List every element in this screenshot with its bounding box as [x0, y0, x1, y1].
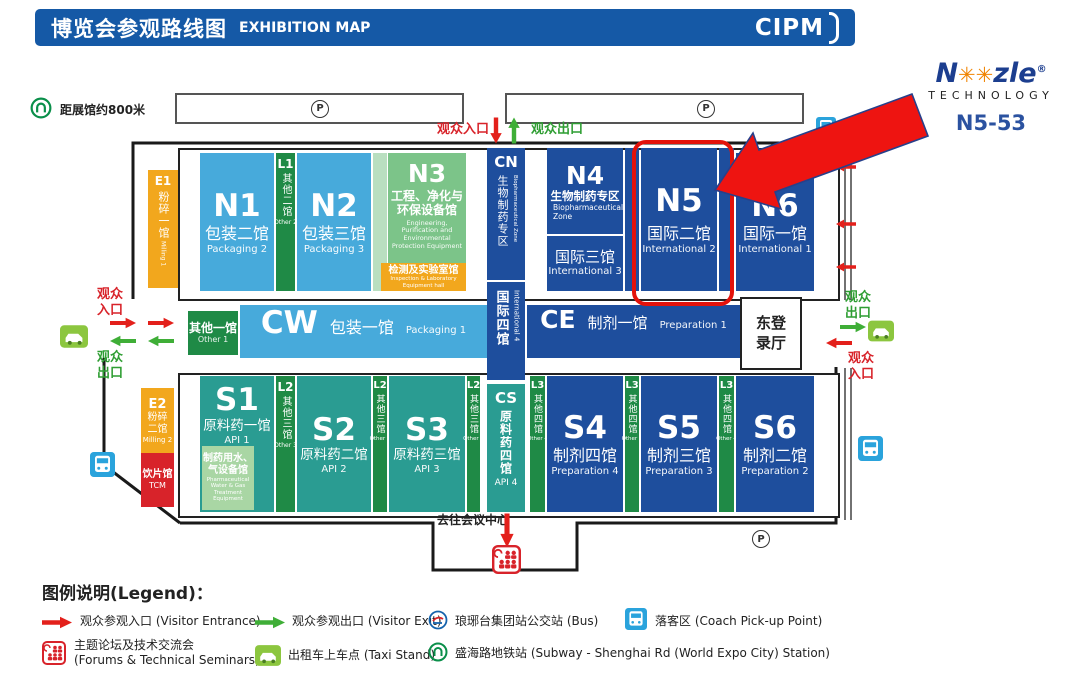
hall-code: N3: [408, 159, 446, 189]
hall-s2: S2 原料药二馆 API 2: [297, 376, 371, 512]
hall-name-en: TCM: [149, 481, 166, 490]
top-visitor-entrance-label: 观众入口: [437, 122, 489, 138]
coach-icon: [90, 452, 115, 477]
hall-n4: N4 生物制药专区 Biopharmaceutical Zone: [547, 148, 623, 234]
hall-l3: L3 其他四馆 Other 4: [719, 376, 734, 512]
hall-name-en: Pharmaceutical Water & Gas Treatment Equ…: [202, 477, 254, 503]
hall-name-en: Preparation 4: [551, 466, 618, 478]
hall-code: L1: [278, 158, 294, 170]
hall-n2: N2 包装三馆 Packaging 3: [297, 153, 371, 291]
taxi-icon: [60, 325, 88, 348]
hall-s6: S6 制剂二馆 Preparation 2: [736, 376, 814, 512]
hall-name-en: Inspection & Laboratory Equipment hall: [381, 276, 466, 289]
hall-name-cn: 其他四馆: [720, 394, 733, 434]
hall-name-en: Other 2: [274, 219, 297, 226]
hall-name-en: API 1: [224, 435, 249, 447]
legend-forums: 主题论坛及技术交流会 (Forums & Technical Seminars): [74, 638, 260, 668]
hall-name-cn: 其他四馆: [531, 394, 544, 434]
hall-name-cn: 工程、净化与环保设备馆: [388, 189, 466, 217]
hall-code: N1: [213, 188, 261, 225]
hall-code: N6: [751, 188, 799, 225]
hall-l1: L1 其他二馆 Other 2: [276, 153, 295, 291]
hall-name-cn: 生物制药专区: [551, 190, 620, 204]
hall-name-en: API 4: [495, 478, 518, 488]
parking-icon: P: [752, 530, 770, 548]
hall-code: S1: [215, 382, 259, 419]
east-hall-line2: 录厅: [756, 334, 786, 354]
parking-icon: P: [697, 100, 715, 118]
right-exit-label: 观众出口: [843, 290, 873, 321]
hall-name-en: Packaging 2: [207, 244, 267, 256]
hall-name-en: Packaging 1: [406, 325, 466, 337]
hall-name-cn: 国际四馆: [492, 290, 511, 346]
hall-code: E2: [149, 397, 167, 412]
hall-code: CS: [495, 389, 517, 407]
hall-name-en: Engineering, Purification and Environmen…: [388, 220, 466, 251]
forums-icon: [42, 641, 66, 665]
hall-name-en: Other 3: [370, 436, 391, 442]
hall-corridor-strip: [625, 148, 639, 291]
hall-name-cn: 其他三馆: [467, 394, 480, 434]
hall-code: S5: [657, 410, 701, 447]
hall-cn: CN 生物制药专区 Biopharmaceutical Zone: [487, 148, 525, 280]
hall-name-en: International 1: [738, 244, 811, 256]
hall-name-cn: 粉碎二馆: [146, 412, 170, 436]
hall-l3: L3 其他四馆 Other 4: [530, 376, 545, 512]
hall-name-cn: 原料药四馆: [498, 410, 515, 475]
hall-name-cn: 包装二馆: [205, 225, 269, 244]
hall-name-cn: 原料药一馆: [203, 419, 271, 435]
hall-name-en: Milling 2: [143, 436, 172, 444]
hall-name-cn: 制剂三馆: [647, 447, 711, 466]
hall-l3: L3 其他四馆 Other 4: [625, 376, 639, 512]
hall-name-en: Other 3: [463, 436, 484, 442]
hall-name-cn: 其他二馆: [278, 173, 293, 217]
parking-icon: P: [311, 100, 329, 118]
legend-coach: 落客区 (Coach Pick-up Point): [655, 614, 822, 629]
legend-visitor-entrance: 观众参观入口 (Visitor Entrance): [80, 614, 261, 629]
hall-name-cn: 检测及实验室馆: [389, 265, 459, 277]
hall-name-cn: 其他三馆: [278, 396, 293, 440]
hall-n5: N5 国际二馆 International 2: [641, 148, 717, 291]
hall-code: L2: [278, 381, 294, 393]
hall-name-cn: 原料药三馆: [393, 448, 461, 464]
subway-icon: [30, 97, 52, 119]
hall-name-cn: 生物制药专区: [494, 175, 510, 247]
left-entrance-label: 观众入口: [95, 287, 125, 318]
hall-n1: N1 包装二馆 Packaging 2: [200, 153, 274, 291]
hall-name-cn: 包装一馆: [330, 319, 394, 338]
hall-corridor-strip: [719, 148, 734, 291]
hall-cs: CS 原料药四馆 API 4: [487, 384, 525, 512]
hall-e2: E2 粉碎二馆 Milling 2: [141, 388, 174, 453]
hall-name-cn: 其他一馆: [189, 321, 237, 335]
hall-name-en: Other 4: [622, 436, 643, 442]
hall-name-en: Preparation 2: [741, 466, 808, 478]
hall-name-cn: 原料药二馆: [300, 448, 368, 464]
hall-code: L3: [720, 381, 733, 391]
hall-name-en: Other 3: [274, 442, 297, 449]
hall-name-cn: 其他三馆: [374, 394, 387, 434]
hall-name-en: Biopharmaceutical Zone: [547, 204, 623, 222]
hall-code: CN: [494, 153, 518, 171]
hall-cw: CW 包装一馆 Packaging 1: [240, 305, 487, 358]
hall-code: N2: [310, 188, 358, 225]
coach-icon: [858, 436, 883, 461]
legend-visitor-exit: 观众参观出口 (Visitor Exit): [292, 614, 442, 629]
hall-code: L3: [625, 381, 638, 391]
hall-name-cn: 制剂四馆: [553, 447, 617, 466]
hall-code: CE: [540, 305, 575, 335]
taxi-icon: [255, 645, 281, 666]
hall-other-1: 其他一馆 Other 1: [188, 311, 238, 355]
hall-name-en: API 2: [321, 464, 346, 476]
hall-name-cn: 其他四馆: [626, 394, 639, 434]
hall-name-en: Other 4: [527, 436, 548, 442]
legend-taxi: 出租车上车点 (Taxi Stand): [288, 648, 435, 663]
hall-code: E1: [155, 175, 172, 187]
hall-name-cn: 国际一馆: [743, 225, 807, 244]
hall-name-cn: 制剂一馆: [588, 315, 648, 333]
hall-name-en: Other 4: [716, 436, 737, 442]
hall-name-en: International 3: [548, 266, 621, 278]
bus-icon: [428, 610, 448, 630]
parking-lot-west: P: [175, 93, 464, 124]
hall-international-4: 国际四馆 International 4: [487, 282, 525, 380]
east-registration-hall: 东登 录厅: [740, 297, 802, 370]
to-conference-label: 去往会议中心: [437, 511, 509, 528]
hall-name-cn: 粉碎一馆: [155, 191, 171, 239]
right-entrance-label: 观众入口: [846, 351, 876, 382]
subway-distance-note: 距展馆约800米: [60, 101, 145, 118]
hall-name-en: International 4: [513, 290, 521, 346]
hall-l2: L2 其他三馆 Other 3: [467, 376, 480, 512]
hall-l2: L2 其他三馆 Other 3: [276, 376, 295, 512]
hall-code: L3: [531, 381, 544, 391]
hall-name-cn: 国际三馆: [555, 249, 615, 267]
legend-bus: 琅琊台集团站公交站 (Bus): [455, 614, 598, 629]
coach-icon: [816, 117, 836, 137]
subway-icon: [428, 642, 448, 662]
hall-n6: N6 国际一馆 International 1: [736, 153, 814, 291]
hall-name-en: Milling 1: [160, 241, 167, 266]
hall-code: L2: [467, 381, 480, 391]
hall-name-cn: 包装三馆: [302, 225, 366, 244]
hall-international-3: 国际三馆 International 3: [547, 236, 623, 291]
hall-code: L2: [373, 381, 386, 391]
hall-n3: N3 工程、净化与环保设备馆 Engineering, Purification…: [388, 153, 466, 263]
hall-l2: L2 其他三馆 Other 3: [373, 376, 387, 512]
legend-title: 图例说明(Legend)：: [42, 579, 213, 604]
hall-name-cn: 国际二馆: [647, 225, 711, 244]
hall-code: S3: [405, 412, 449, 449]
hall-n3-inspection-lab: 检测及实验室馆 Inspection & Laboratory Equipmen…: [381, 263, 466, 291]
parking-lot-east: P: [505, 93, 804, 124]
coach-icon: [625, 608, 647, 630]
hall-code: S4: [563, 410, 607, 447]
hall-s3: S3 原料药三馆 API 3: [389, 376, 465, 512]
hall-e1: E1 粉碎一馆 Milling 1: [148, 170, 178, 288]
hall-code: CW: [261, 305, 318, 342]
hall-s5: S5 制剂三馆 Preparation 3: [641, 376, 717, 512]
hall-name-en: Preparation 3: [645, 466, 712, 478]
hall-name-cn: 制药用水、气设备馆: [202, 453, 254, 477]
hall-name-en: International 2: [642, 244, 715, 256]
top-visitor-exit-label: 观众出口: [531, 122, 583, 138]
exhibition-map-page: 博览会参观路线图 EXHIBITION MAP CIPM N✳✳zle® TEC…: [0, 0, 1080, 680]
hall-code: S6: [753, 410, 797, 447]
hall-code: N4: [566, 161, 604, 191]
hall-name-en: API 3: [414, 464, 439, 476]
hall-name-cn: 制剂二馆: [743, 447, 807, 466]
hall-code: S2: [312, 412, 356, 449]
hall-name-en: Packaging 3: [304, 244, 364, 256]
legend-subway: 盛海路地铁站 (Subway - Shenghai Rd (World Expo…: [455, 646, 830, 661]
hall-name-en: Other 1: [198, 335, 228, 344]
left-exit-label: 观众出口: [95, 350, 125, 381]
forums-icon: [492, 545, 521, 574]
hall-ce: CE 制剂一馆 Preparation 1: [527, 305, 740, 358]
hall-name-en: Preparation 1: [660, 320, 727, 332]
hall-s4: S4 制剂四馆 Preparation 4: [547, 376, 623, 512]
hall-tcm: 饮片馆 TCM: [141, 453, 174, 507]
hall-code: N5: [655, 183, 703, 220]
hall-s1-water-gas: 制药用水、气设备馆 Pharmaceutical Water & Gas Tre…: [202, 446, 254, 510]
hall-name-cn: 饮片馆: [143, 469, 173, 481]
east-hall-line1: 东登: [756, 314, 786, 334]
hall-name-en: Biopharmaceutical Zone: [512, 175, 518, 247]
taxi-icon: [868, 320, 894, 342]
